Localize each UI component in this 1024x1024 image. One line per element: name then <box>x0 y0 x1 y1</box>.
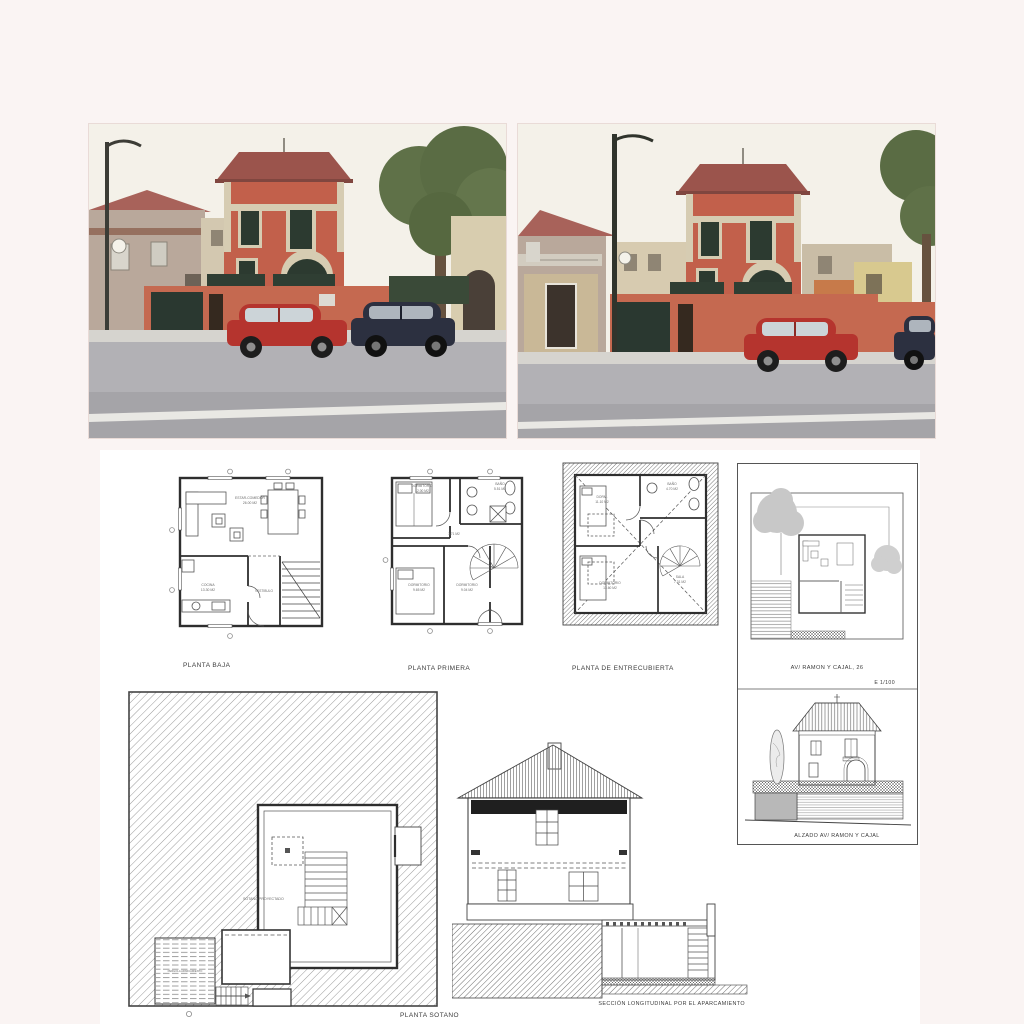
room-label: BAÑO <box>495 481 505 486</box>
room-label: SALA <box>676 575 685 579</box>
scale-label: E 1/100 <box>874 680 895 686</box>
caption-planta-sotano: PLANTA SOTANO <box>400 1012 459 1019</box>
caption-planta-primera: PLANTA PRIMERA <box>408 665 470 672</box>
room-label: DORM. <box>597 495 608 499</box>
lower-room <box>222 930 290 984</box>
upper-window-left <box>241 211 259 245</box>
roof <box>215 152 353 182</box>
garage <box>755 793 797 820</box>
floor-plan-planta-primera: DORMITORIO 12.00 M2 BAÑO 5.51 M2 3.71 M2… <box>382 468 532 636</box>
room-area: 11.10 M2 <box>595 500 609 504</box>
plinth <box>467 904 633 920</box>
garage-door <box>151 292 203 334</box>
room-label: BAÑO <box>667 481 677 486</box>
room-label: DORMITORIO <box>599 581 621 585</box>
upper-window-left <box>701 222 719 256</box>
room-area: 7.31 M2 <box>674 580 686 584</box>
hatched-strip <box>791 631 845 639</box>
street-photo-2-scene <box>518 124 935 438</box>
caption-entrecubierta: PLANTA DE ENTRECUBIERTA <box>572 665 674 672</box>
bottom-room <box>253 989 291 1006</box>
street-photo-2 <box>517 123 936 439</box>
room-area: 9.65 M2 <box>413 588 425 592</box>
caption-planta-baja: PLANTA BAJA <box>183 662 230 669</box>
floor-plan-planta-baja: ESTAR-COMEDOR 26.00 M2 COCINA 13.30 M2 V… <box>168 468 333 640</box>
room-area: 3.71 M2 <box>448 532 460 536</box>
architecture-project-page: { "drawings": { "planta_baja": { "captio… <box>0 0 1024 1024</box>
parking-ladder <box>688 928 708 978</box>
room-area: 12.00 M2 <box>415 489 429 493</box>
room-label: DORMITORIO <box>408 583 430 587</box>
room-area: 5.51 M2 <box>494 487 506 491</box>
section-roof <box>458 745 642 798</box>
room-area: 13.30 M2 <box>201 588 215 592</box>
sidewalk <box>518 352 935 364</box>
room-label: COCINA <box>201 583 215 587</box>
elevation-caption: ALZADO AV/ RAMON Y CAJAL <box>794 833 879 839</box>
room-label: SOTANO PROYECTADO <box>243 897 284 901</box>
room-area: 9.04 M2 <box>461 588 473 592</box>
survey-marker <box>186 1011 191 1016</box>
parapet <box>707 904 715 936</box>
street-wall <box>797 793 903 819</box>
ground-hatch-right <box>602 985 747 994</box>
section-caption: SECCIÓN LONGITUDINAL POR EL APARCAMIENTO <box>598 1000 745 1007</box>
entry-stair <box>216 987 251 1005</box>
room-label: DORMITORIO <box>411 484 433 488</box>
basement-stair <box>298 852 347 925</box>
site-plan-and-elevation-panel: AV/ RAMON Y CAJAL, 26 E 1/100 AL <box>737 463 918 845</box>
neighbor-house-left <box>518 210 616 354</box>
room-area: 26.00 M2 <box>243 501 257 505</box>
room-label: VESTIBULO <box>255 589 273 593</box>
site-plan-caption: AV/ RAMON Y CAJAL, 26 <box>791 665 864 671</box>
section-drawing: SECCIÓN LONGITUDINAL POR EL APARCAMIENTO <box>452 732 748 1010</box>
room-area: 4.70 M2 <box>666 487 678 491</box>
house-footprint <box>799 535 865 613</box>
room-area: 13.60 M2 <box>603 586 617 590</box>
drawing-sheet: ESTAR-COMEDOR 26.00 M2 COCINA 13.30 M2 V… <box>100 450 920 1024</box>
floor-plan-entrecubierta: DORM. 11.10 M2 BAÑO 4.70 M2 DORMITORIO 1… <box>558 458 723 640</box>
garden-steps <box>751 581 791 639</box>
room-label: ESTAR-COMEDOR <box>235 496 265 500</box>
street-photo-1 <box>88 123 507 439</box>
floor-plan-sotano: SOTANO PROYECTADO PERGOLA APARCAMIENTO <box>127 690 439 1020</box>
lightwell <box>395 827 421 865</box>
upper-window-right <box>750 221 772 260</box>
room-label: DORMITORIO <box>456 583 478 587</box>
street-photo-1-scene <box>89 124 506 438</box>
upper-window-right <box>290 210 312 249</box>
room-label: PERGOLA APARCAMIENTO <box>168 969 203 973</box>
ground-hatch-left <box>452 924 602 998</box>
garage-door <box>616 302 670 352</box>
neighbor-house-right <box>451 216 506 332</box>
